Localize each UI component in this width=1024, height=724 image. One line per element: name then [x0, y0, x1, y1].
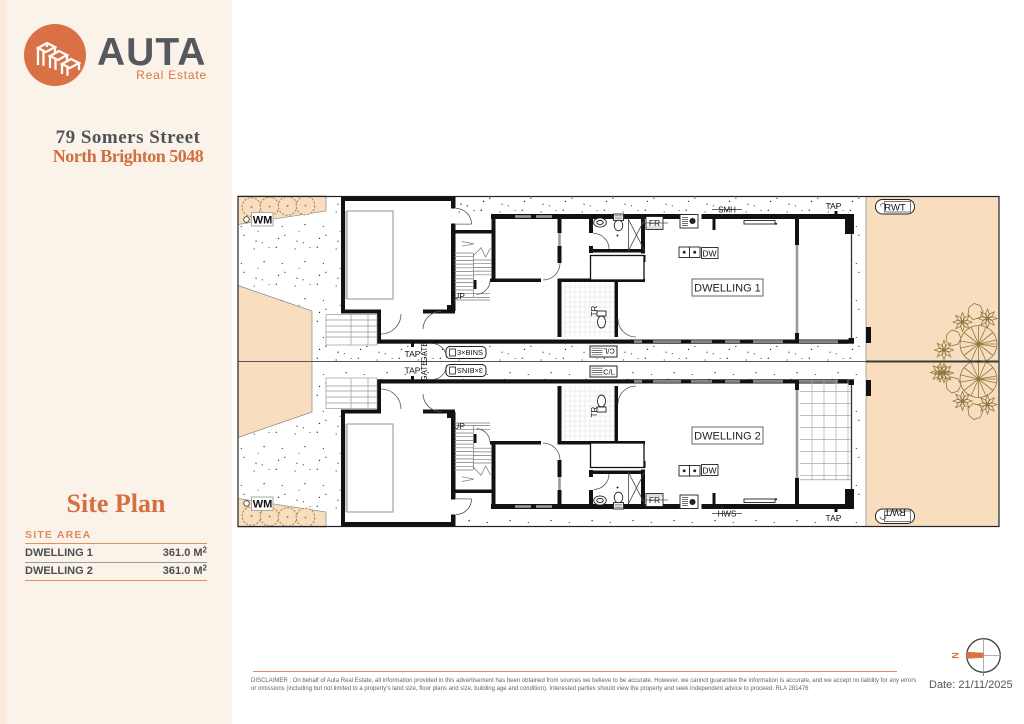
svg-text:DW: DW [702, 249, 716, 259]
svg-text:FR: FR [649, 495, 660, 505]
svg-text:N: N [951, 652, 961, 659]
svg-text:FR: FR [649, 218, 660, 228]
svg-text:DW: DW [702, 466, 716, 476]
svg-text:RWT: RWT [884, 203, 906, 214]
svg-text:WM: WM [253, 215, 273, 227]
svg-text:TAP: TAP [405, 349, 421, 359]
svg-text:SMH: SMH [718, 206, 736, 215]
svg-text:TAP: TAP [826, 201, 842, 211]
svg-text:3×BINS: 3×BINS [457, 366, 483, 375]
svg-text:WM: WM [253, 499, 273, 511]
svg-text:TR: TR [590, 305, 599, 316]
svg-text:DWELLING 2: DWELLING 2 [694, 431, 761, 443]
svg-text:3×BINS: 3×BINS [457, 348, 483, 357]
svg-text:C/L: C/L [603, 347, 615, 356]
svg-text:DWELLING 1: DWELLING 1 [694, 283, 761, 295]
svg-text:TR: TR [590, 406, 599, 417]
svg-text:HWS: HWS [718, 510, 737, 519]
svg-text:TAP: TAP [826, 513, 842, 523]
svg-text:C/L: C/L [603, 368, 615, 377]
svg-text:UP: UP [453, 291, 465, 301]
svg-text:TAP: TAP [405, 366, 421, 376]
svg-text:GATE: GATE [420, 341, 429, 362]
svg-text:UP: UP [453, 421, 465, 431]
svg-text:GATE: GATE [420, 360, 429, 381]
svg-text:RWT: RWT [884, 507, 906, 518]
